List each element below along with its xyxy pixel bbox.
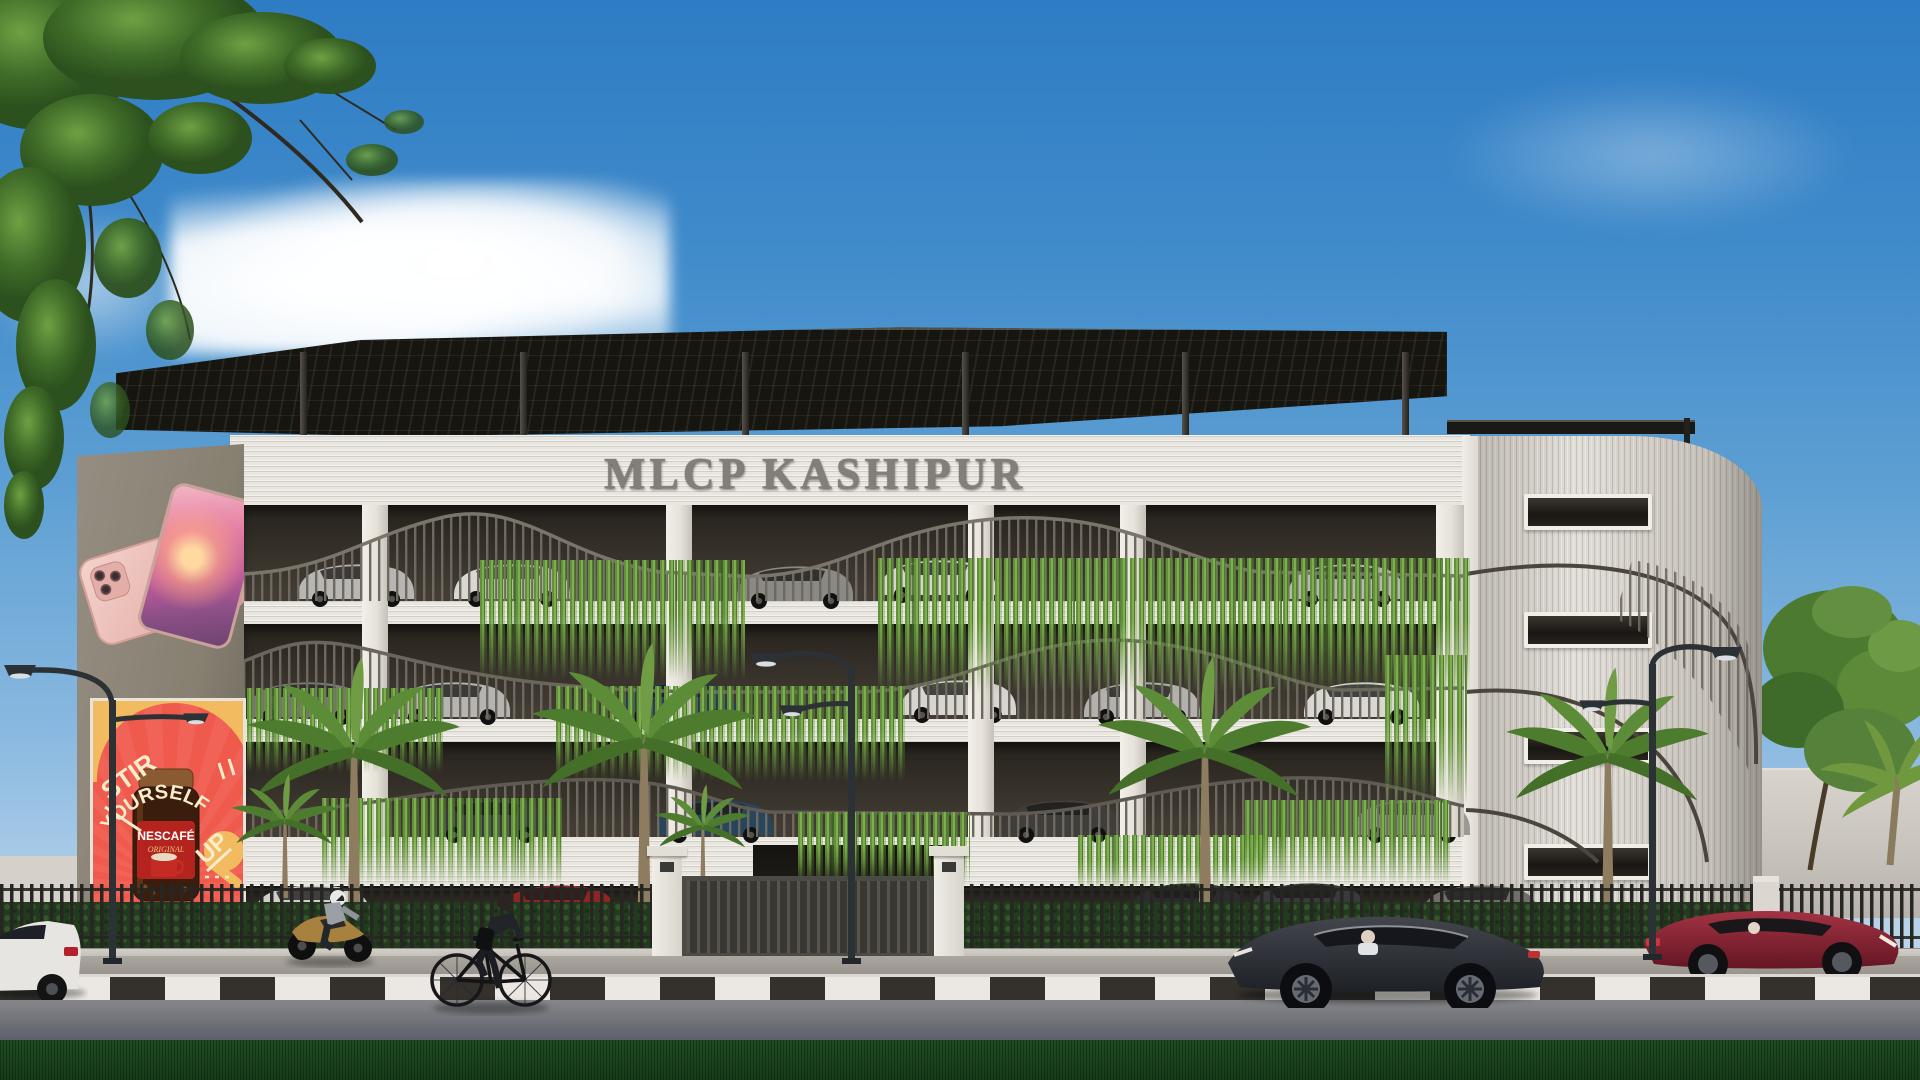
foreground-tree bbox=[0, 0, 520, 560]
street-lamp-right bbox=[1579, 647, 1742, 960]
street-lamp-center bbox=[750, 653, 861, 964]
tree-foliage bbox=[0, 0, 424, 539]
scene-render: MLCP KASHIPUR NESCAFÉ bbox=[0, 0, 1920, 1080]
street-lamp-left bbox=[4, 665, 209, 964]
